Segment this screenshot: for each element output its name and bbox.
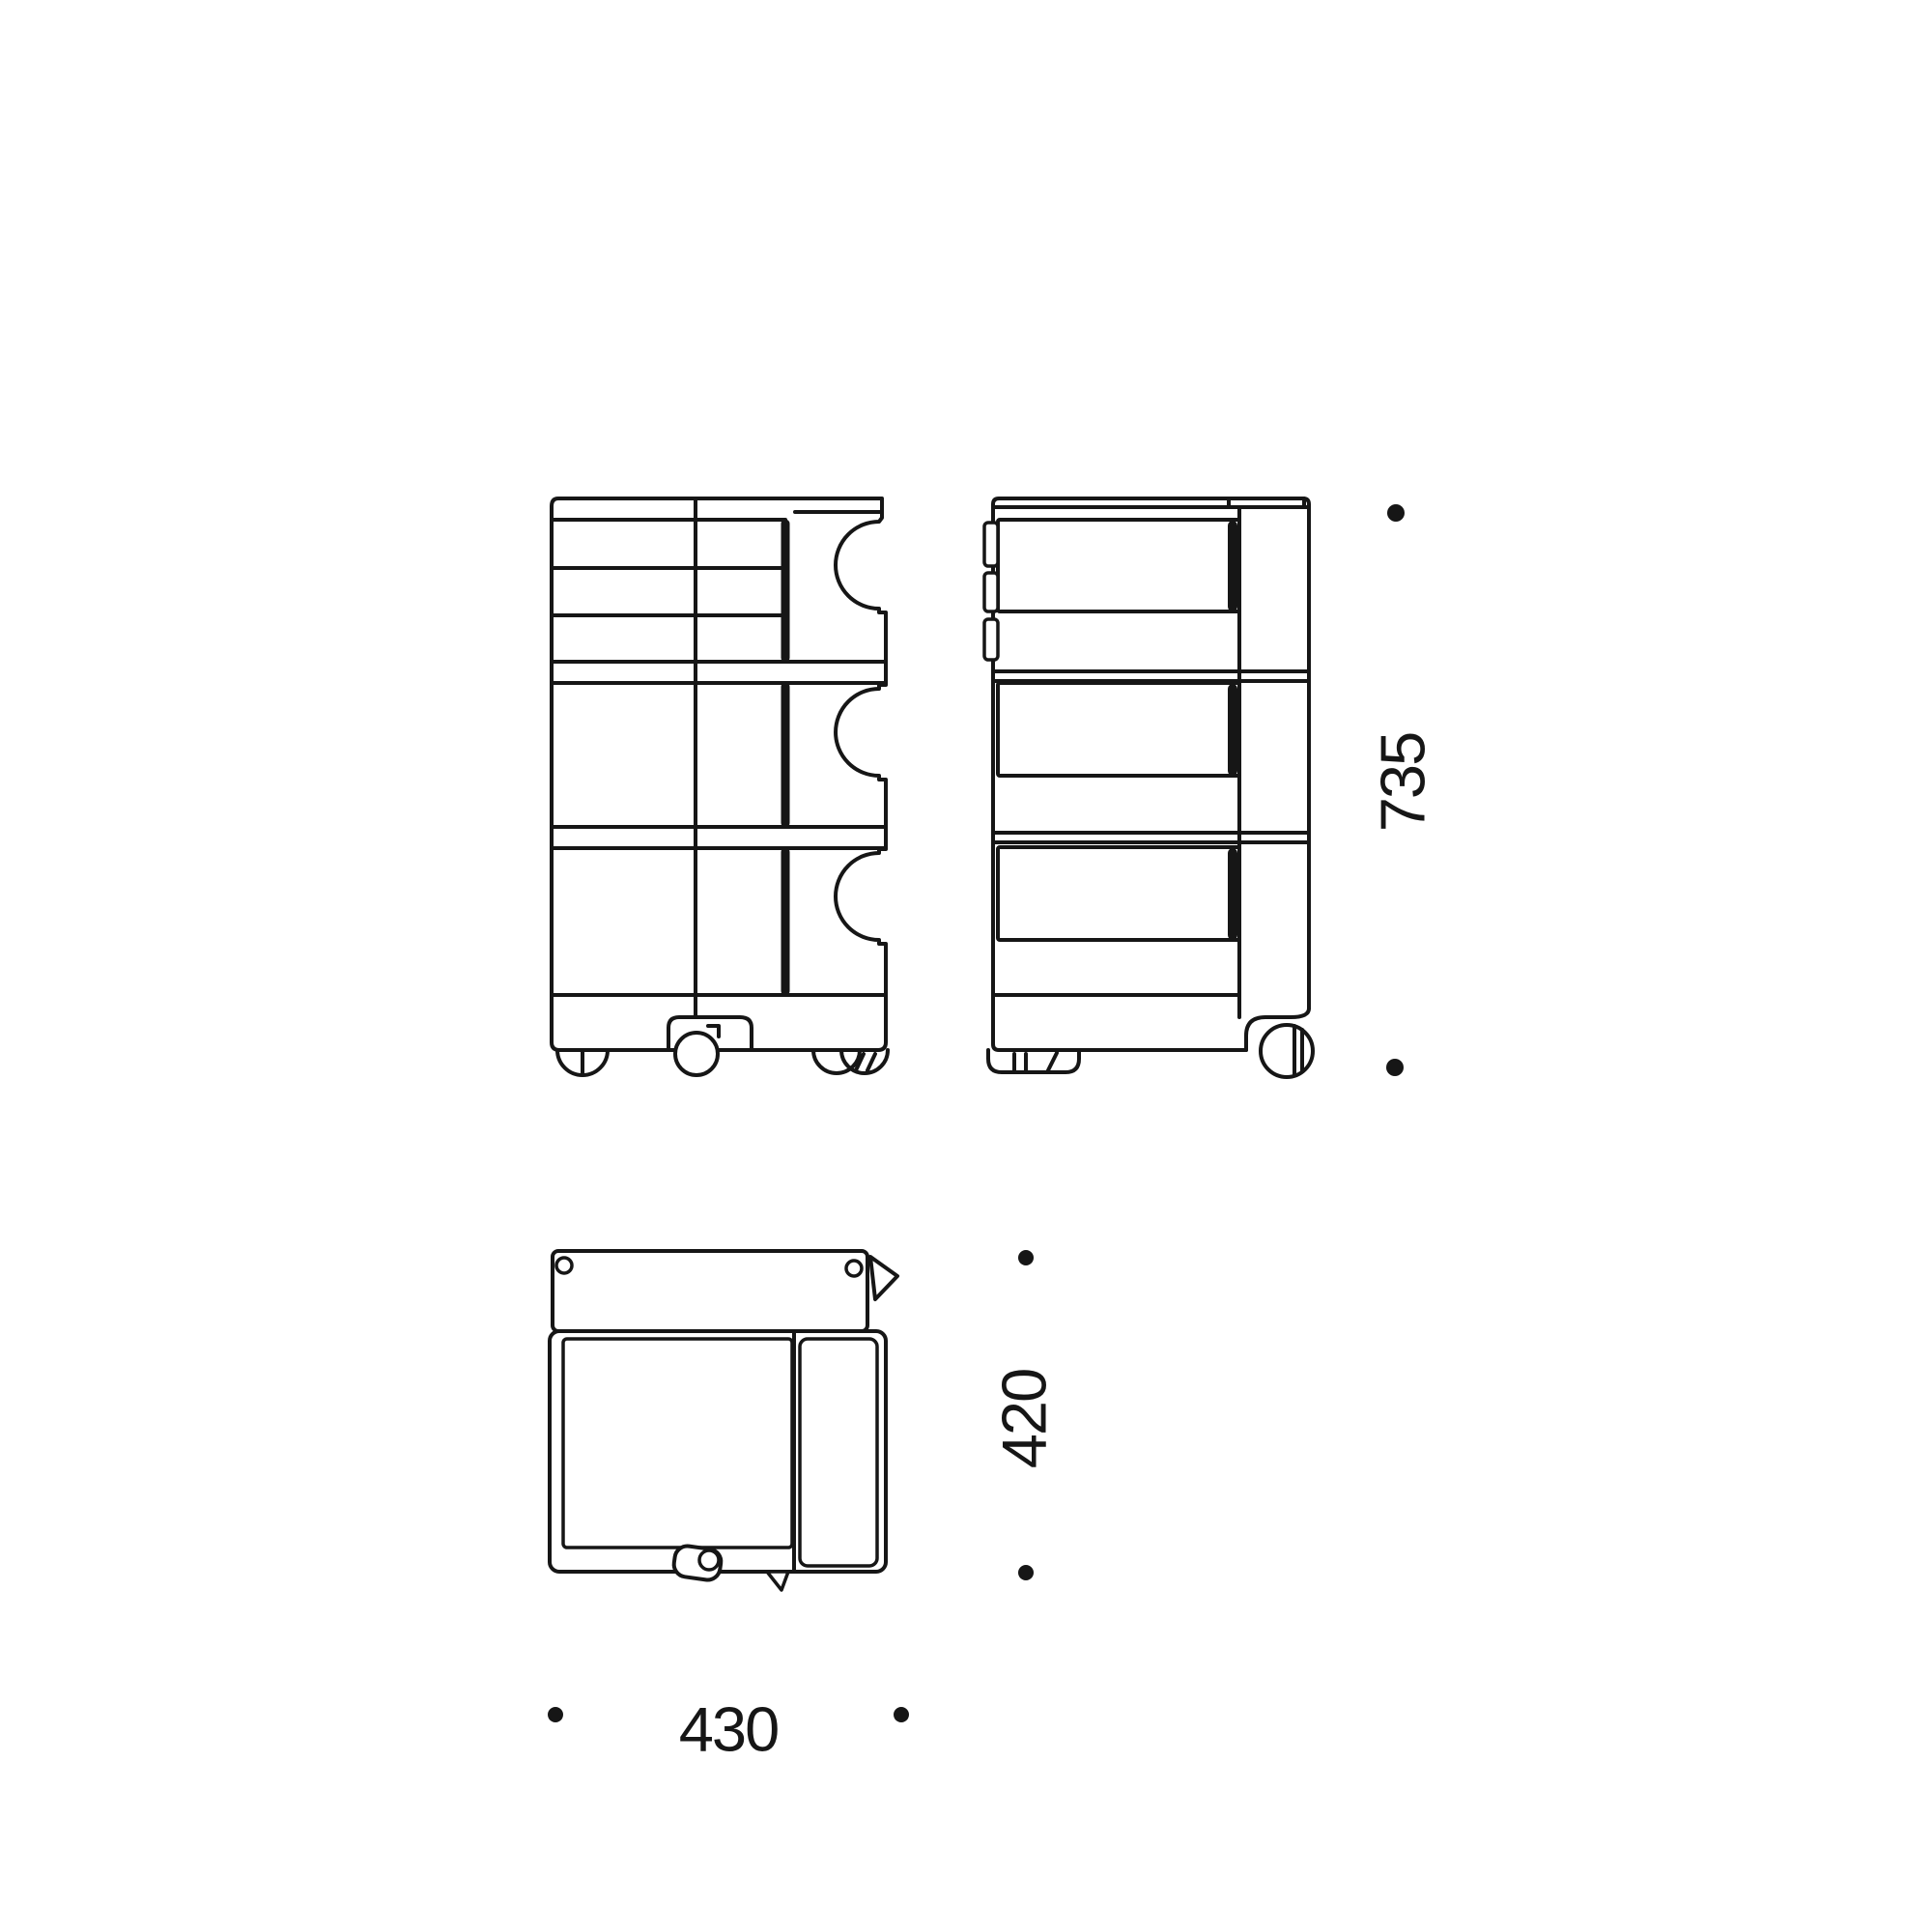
depth-dim-dot-bottom bbox=[1018, 1565, 1034, 1580]
top-view-pivot-right bbox=[846, 1261, 862, 1276]
front-view-outline bbox=[552, 498, 886, 1050]
front-view-shelf-lines bbox=[552, 512, 884, 995]
front-right-caster bbox=[813, 1050, 888, 1073]
top-view-body-outline bbox=[550, 1331, 886, 1572]
top-view-bottom-arrow bbox=[767, 1572, 788, 1590]
top-view-tabletop-bar bbox=[553, 1251, 867, 1331]
side-view bbox=[984, 498, 1313, 1077]
front-left-caster bbox=[557, 1050, 608, 1075]
front-center-caster-wheel bbox=[675, 1033, 718, 1075]
height-dim-dot-top bbox=[1387, 504, 1405, 522]
side-view-drawer-box-1 bbox=[998, 520, 1239, 611]
drawer-tab-2 bbox=[984, 573, 998, 611]
side-right-caster-wheel bbox=[1261, 1025, 1313, 1077]
depth-dimension-label: 420 bbox=[989, 1370, 1060, 1468]
front-view bbox=[552, 498, 888, 1075]
side-view-drawer-front-tabs bbox=[984, 523, 998, 660]
drawer-tab-1 bbox=[984, 523, 998, 566]
height-dimension-label: 735 bbox=[1368, 733, 1438, 832]
diagram-svg: 735 420 430 bbox=[0, 0, 1932, 1932]
top-view-caster-wheel bbox=[699, 1550, 719, 1570]
width-dim-dot-left bbox=[548, 1707, 563, 1722]
side-view-drawer-box-2 bbox=[998, 683, 1239, 776]
top-view bbox=[550, 1251, 897, 1590]
width-dim-dot-right bbox=[894, 1707, 909, 1722]
side-view-casters bbox=[988, 1009, 1313, 1077]
front-view-casters bbox=[557, 1017, 888, 1075]
drawer-tab-3 bbox=[984, 619, 998, 660]
top-view-pivot-left bbox=[556, 1258, 572, 1273]
height-dim-dot-bottom bbox=[1386, 1059, 1404, 1076]
technical-drawing-canvas: 735 420 430 bbox=[0, 0, 1932, 1932]
width-dimension-label: 430 bbox=[679, 1694, 778, 1765]
depth-dim-dot-top bbox=[1018, 1250, 1034, 1265]
side-left-caster-bracket bbox=[988, 1050, 1079, 1072]
side-view-drawer-box-3 bbox=[998, 847, 1239, 940]
top-view-swivel-arrow bbox=[870, 1257, 897, 1299]
side-view-horizontal-lines bbox=[993, 498, 1309, 995]
